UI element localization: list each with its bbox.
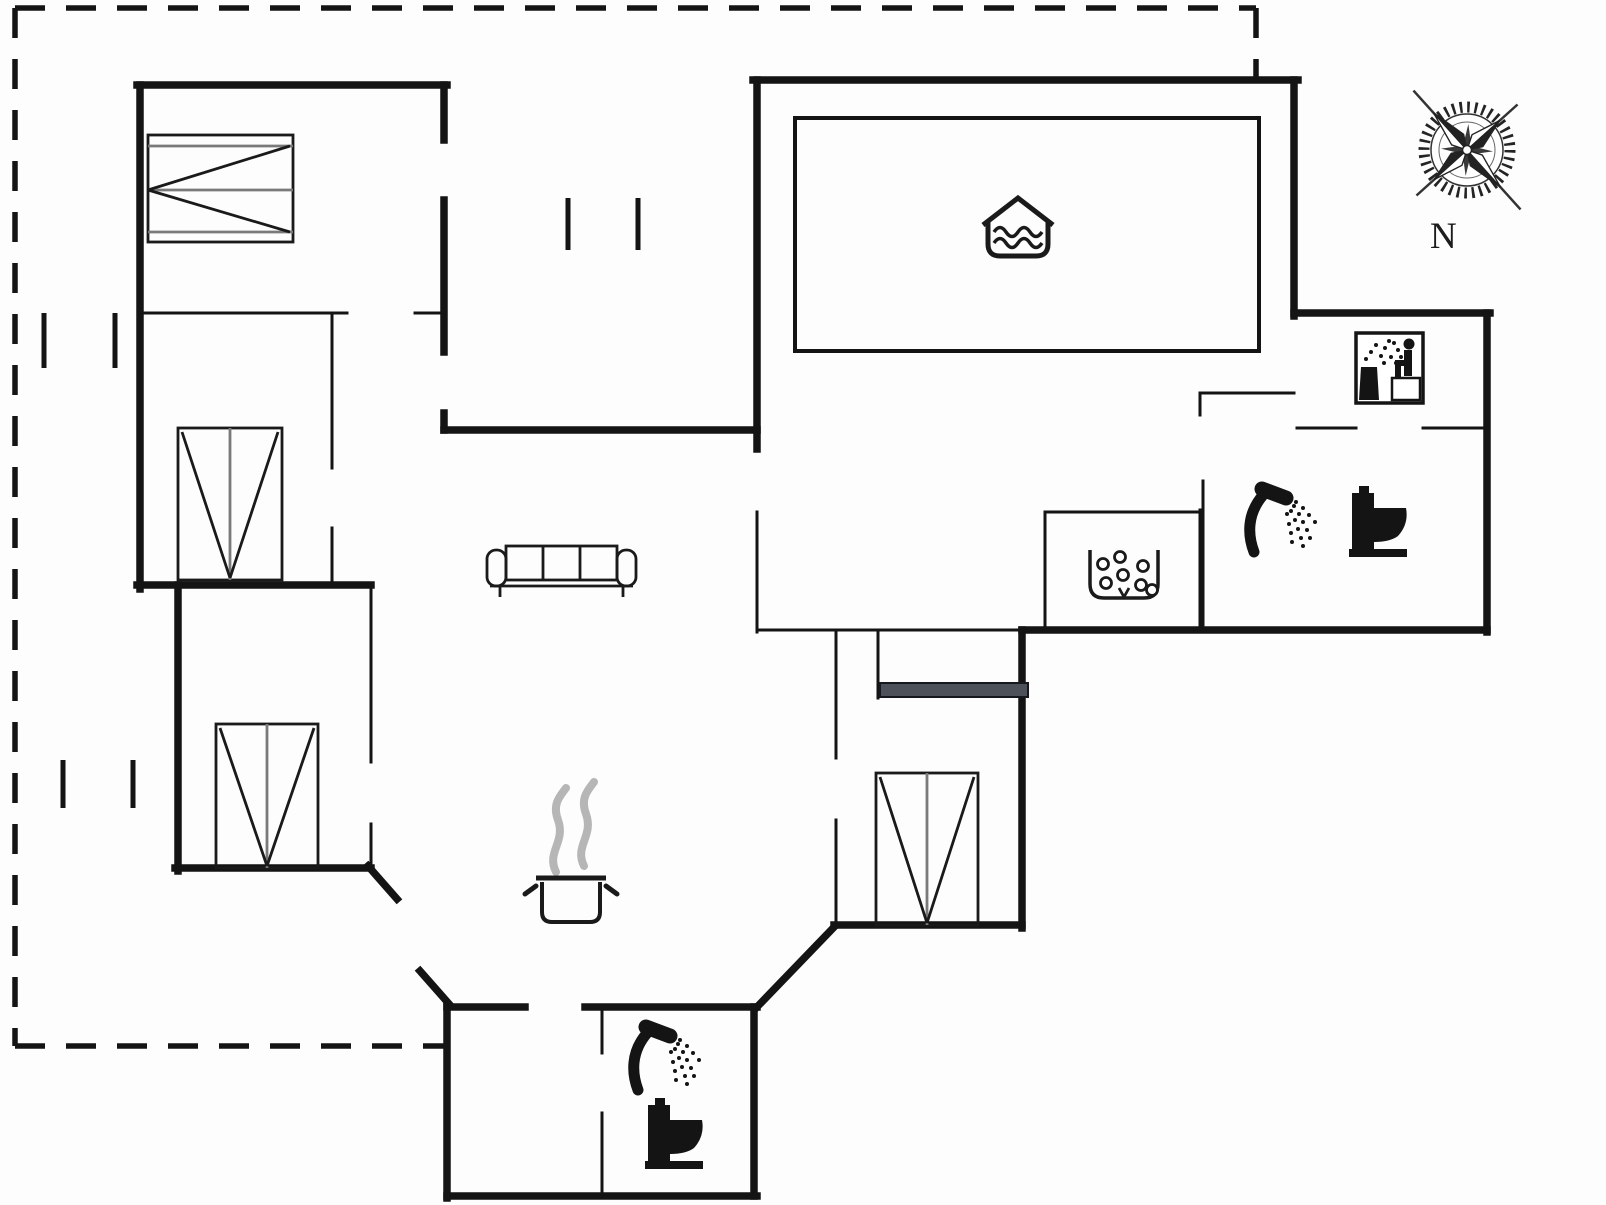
- pool-water-icon: [983, 198, 1053, 256]
- shower-icon-bathroom-east: [1250, 489, 1317, 552]
- pool-basin-outline: [795, 118, 1259, 351]
- shower-icon-bathroom-south: [634, 1027, 701, 1090]
- bed-icon-3: [216, 724, 318, 868]
- floor-plan-drawing: N: [0, 0, 1606, 1205]
- floor-plan-canvas: N: [0, 0, 1606, 1205]
- sofa-icon: [487, 546, 636, 597]
- sauna-icon: [1356, 333, 1423, 403]
- toilet-icon-bathroom-east: [1349, 486, 1407, 557]
- outer-walls: [137, 80, 1490, 1198]
- whirlpool-bubbles-icon: [1090, 550, 1158, 598]
- north-label: N: [1430, 216, 1457, 257]
- compass-rose-icon: [1363, 45, 1571, 255]
- bed-icon-4: [876, 773, 978, 925]
- inner-walls: [140, 313, 1487, 1196]
- dashed-terrace-outline: [15, 8, 1256, 1046]
- window-tick-icon: [44, 198, 638, 808]
- stove-pot-steam-icon: [525, 782, 617, 922]
- bed-icon-1: [148, 135, 293, 242]
- toilet-icon-bathroom-south: [645, 1098, 703, 1169]
- sliding-door-bar: [880, 683, 1028, 697]
- bed-icon-2: [178, 428, 282, 580]
